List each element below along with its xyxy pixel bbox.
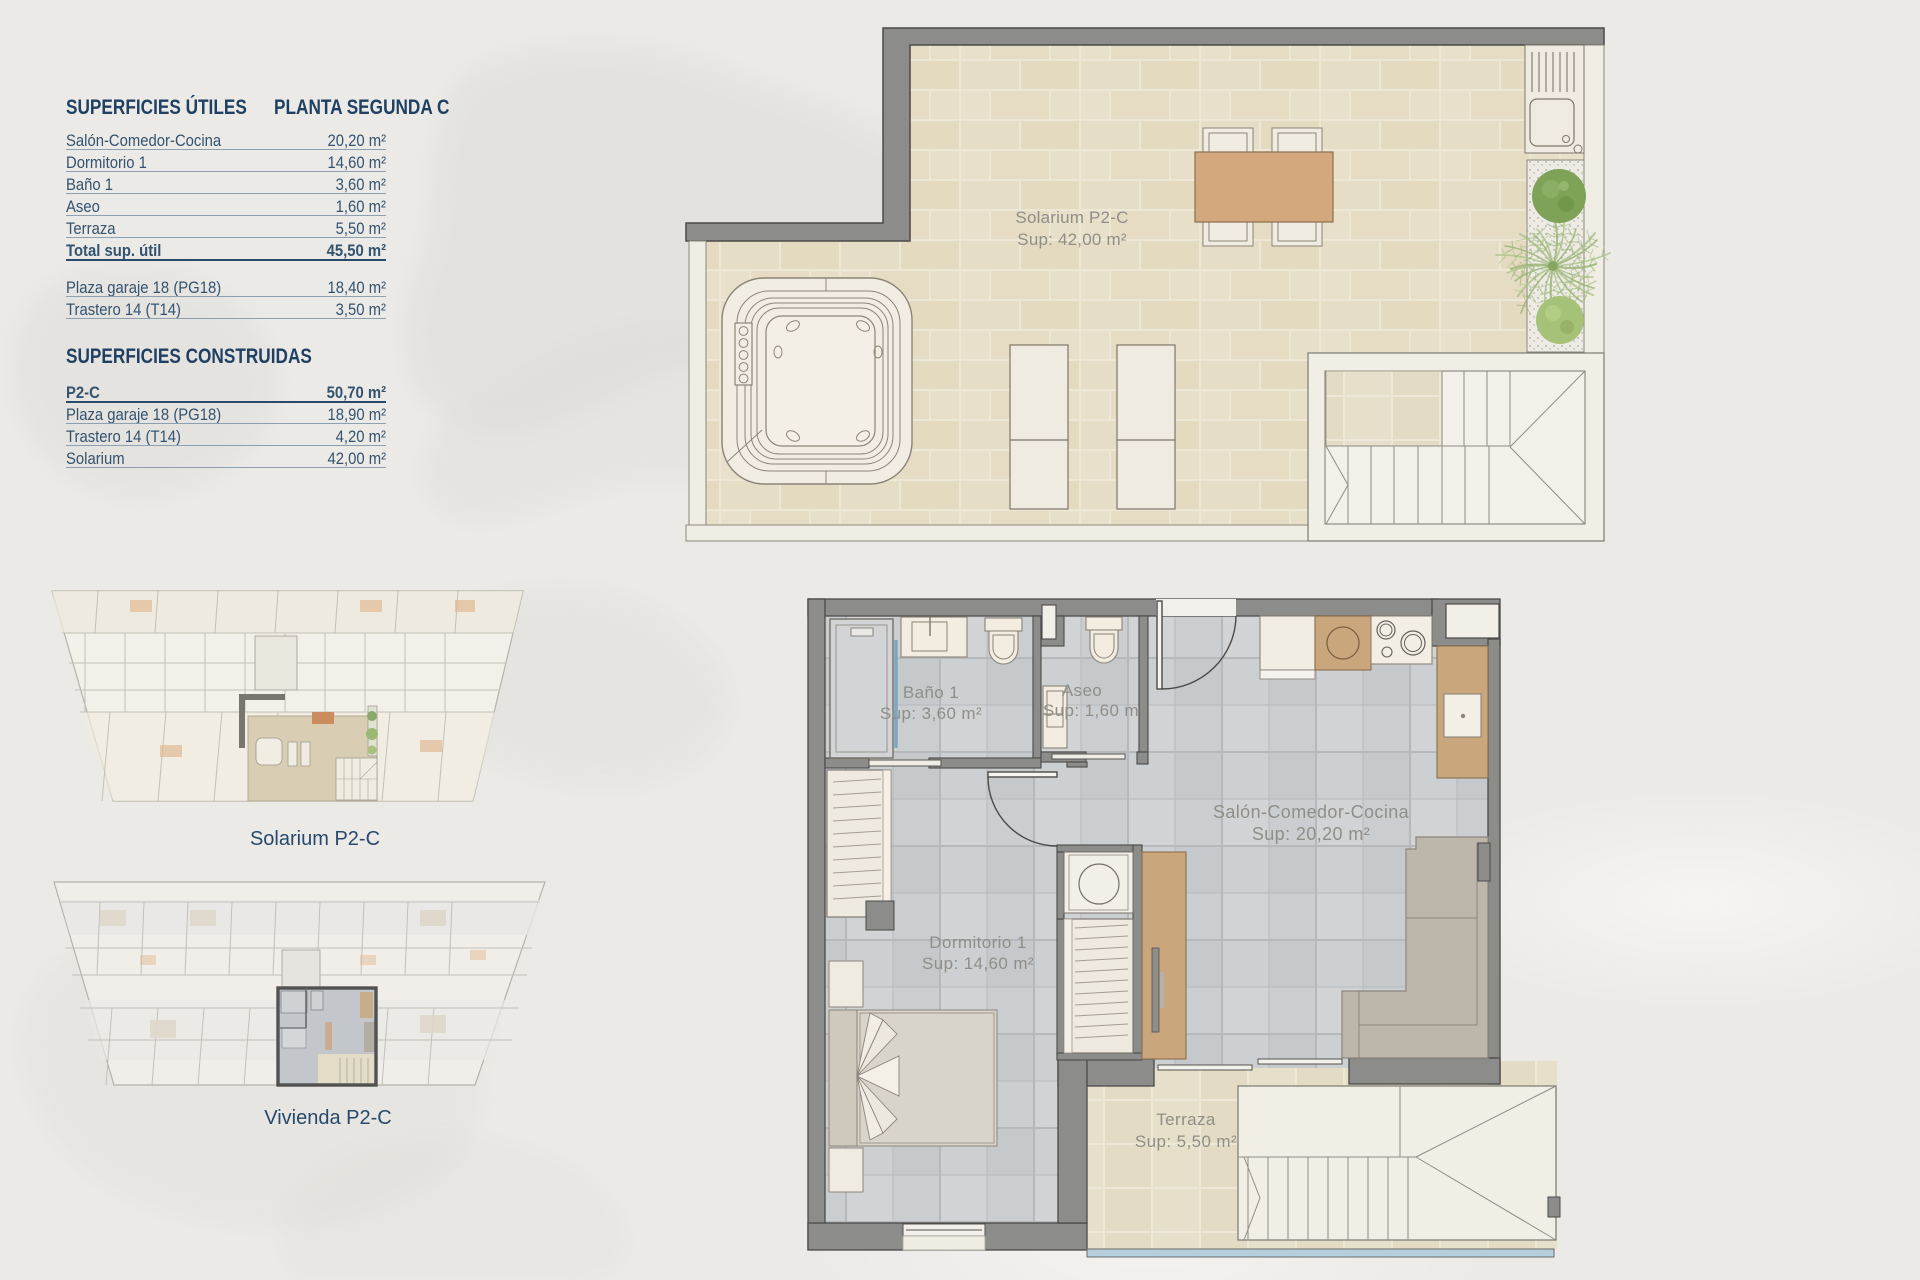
svg-text:Solarium P2-C: Solarium P2-C [1015,208,1128,227]
svg-text:Terraza: Terraza [1156,1110,1216,1129]
svg-text:Sup: 5,50 m²: Sup: 5,50 m² [1135,1132,1237,1151]
svg-text:Sup: 42,00 m²: Sup: 42,00 m² [1017,230,1127,249]
svg-text:Solarium P2-C: Solarium P2-C [250,828,380,850]
svg-text:Sup: 14,60 m²: Sup: 14,60 m² [922,954,1034,973]
svg-text:Baño 1: Baño 1 [903,683,959,702]
svg-text:Dormitorio 1: Dormitorio 1 [929,933,1026,952]
svg-text:Sup: 20,20 m²: Sup: 20,20 m² [1252,824,1370,844]
svg-text:Salón-Comedor-Cocina: Salón-Comedor-Cocina [1213,802,1410,822]
svg-text:Sup: 1,60 m²: Sup: 1,60 m² [1043,701,1145,720]
svg-text:Sup: 3,60 m²: Sup: 3,60 m² [880,704,982,723]
svg-text:Vivienda P2-C: Vivienda P2-C [264,1107,391,1129]
svg-text:Aseo: Aseo [1062,681,1102,700]
